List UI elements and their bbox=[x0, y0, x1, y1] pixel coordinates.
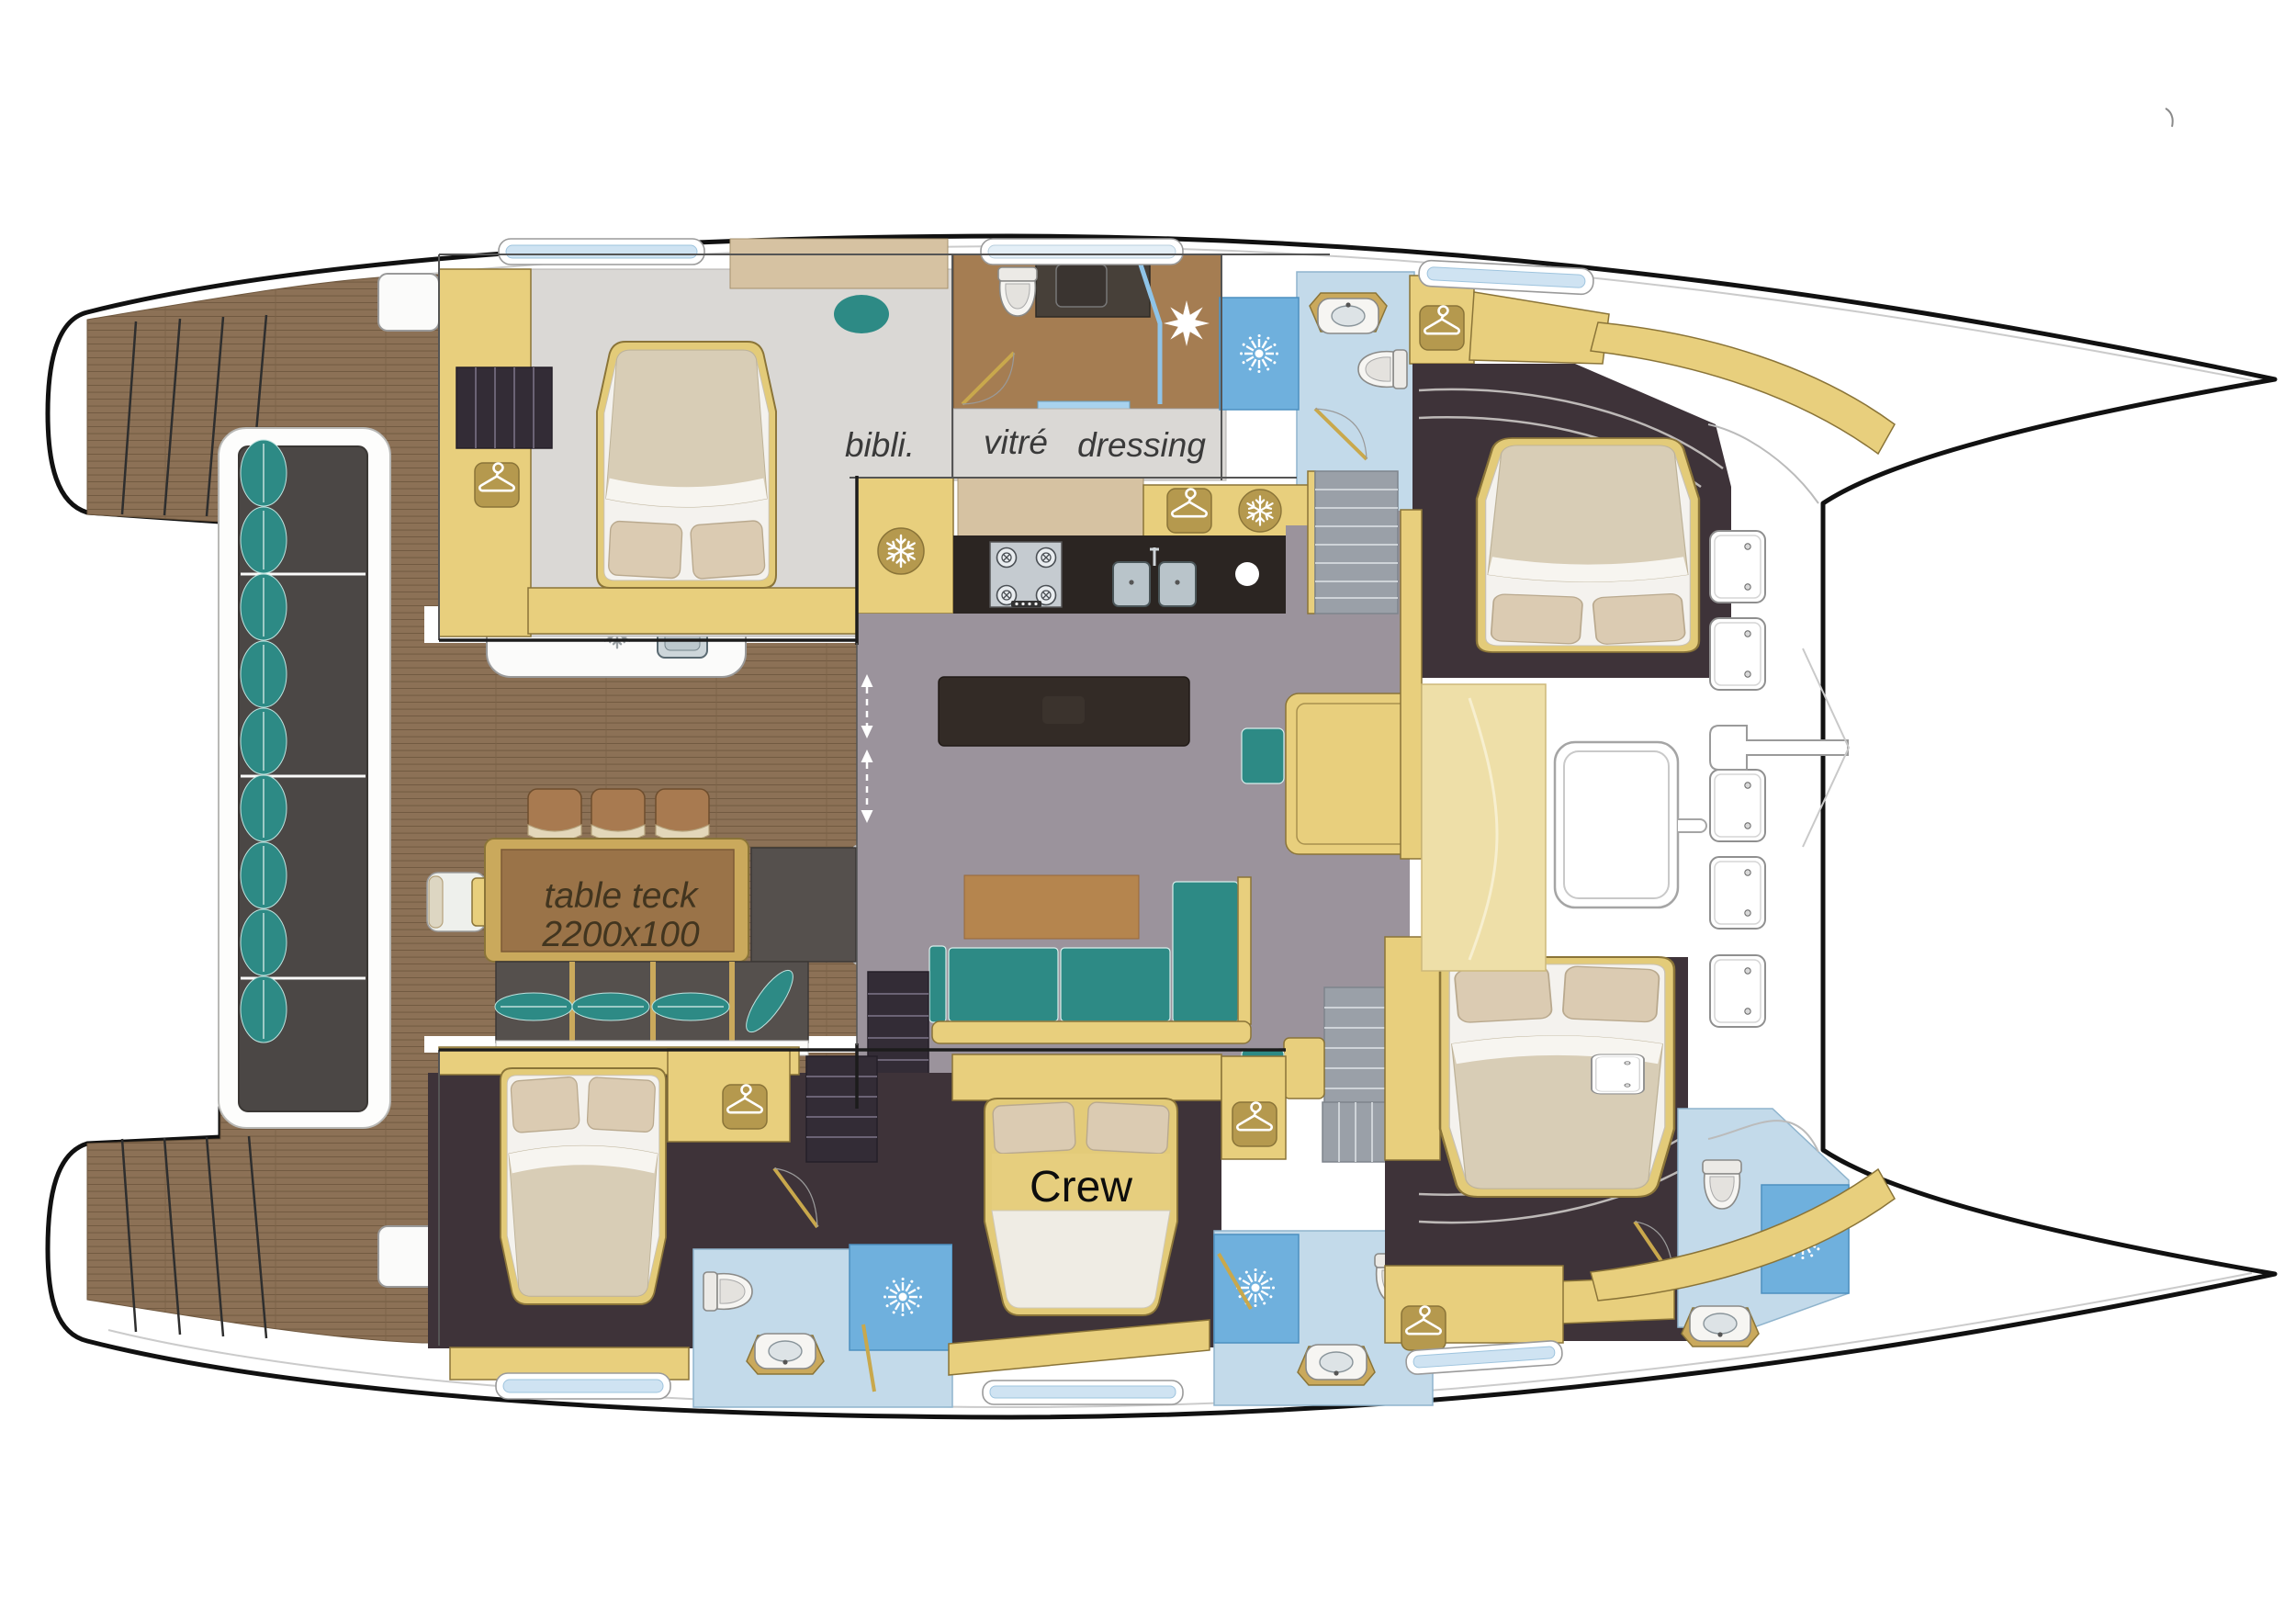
cabin-top-left-wardrobe bbox=[439, 269, 531, 637]
cabin-top-right bbox=[1412, 364, 1731, 678]
deck-hatch-icon bbox=[1710, 770, 1765, 841]
tv-cabinet-logo bbox=[1042, 696, 1085, 724]
snowflake-icon bbox=[878, 528, 924, 574]
label-library: bibli. bbox=[845, 426, 915, 464]
sink-icon bbox=[747, 1334, 824, 1374]
stairs-starboard-forward bbox=[1308, 471, 1398, 614]
coffee-table bbox=[964, 875, 1139, 939]
library-pouf bbox=[834, 295, 889, 333]
bed-bottom-left bbox=[501, 1068, 666, 1304]
deck-hatch-icon bbox=[1710, 531, 1765, 603]
cabin-top-left-cabinet bbox=[730, 239, 948, 288]
bed-top-right bbox=[1477, 438, 1699, 652]
window-crew bbox=[983, 1381, 1183, 1404]
desk-chair bbox=[1242, 728, 1284, 783]
hatch-above-wc bbox=[981, 239, 1183, 265]
lounge-cushions bbox=[241, 440, 287, 1043]
sink-icon bbox=[1298, 1345, 1375, 1385]
galley-porthole bbox=[1235, 562, 1259, 586]
dining-chair bbox=[591, 789, 645, 842]
cockpit-table: table teck 2200x100 bbox=[472, 839, 748, 962]
window-top-left bbox=[499, 239, 704, 265]
deck-locker-top bbox=[378, 274, 439, 331]
hanger-icon bbox=[475, 463, 519, 507]
deck-hatch-icon bbox=[1710, 955, 1765, 1027]
shower-star-icon bbox=[1164, 300, 1210, 346]
galley bbox=[857, 478, 1309, 614]
hanger-icon bbox=[723, 1085, 767, 1129]
plan-labels: bibli. vitré dressing bbox=[845, 423, 1206, 464]
bed-top-left bbox=[597, 342, 776, 588]
hanger-icon bbox=[1401, 1306, 1446, 1350]
stairs-port-aft bbox=[456, 367, 552, 448]
hanger-icon bbox=[1232, 1102, 1277, 1146]
table-label-line2: 2200x100 bbox=[541, 915, 700, 954]
label-glazing: vitré bbox=[984, 423, 1048, 461]
crew-bed: Crew bbox=[985, 1099, 1177, 1315]
deck-hatch-icon bbox=[1710, 618, 1765, 690]
table-label-line1: table teck bbox=[545, 876, 700, 916]
hanger-icon bbox=[1420, 306, 1464, 350]
deck-hatch-icon bbox=[1710, 857, 1765, 929]
crew-label: Crew bbox=[1030, 1163, 1132, 1212]
window-bottom-left bbox=[496, 1373, 670, 1399]
snowflake-icon bbox=[1239, 490, 1281, 532]
stairs-bottom-left bbox=[806, 1056, 877, 1162]
dining-chair bbox=[656, 789, 709, 842]
dressing-wc-room bbox=[953, 239, 1221, 412]
label-dressing: dressing bbox=[1077, 426, 1206, 464]
sink-icon bbox=[1310, 293, 1387, 333]
deck-plan-stage: table teck 2200x100 bbox=[0, 0, 2296, 1623]
stray-mark bbox=[2166, 108, 2173, 127]
sink-icon bbox=[1682, 1306, 1759, 1347]
stairs-starboard-companionway bbox=[1322, 987, 1387, 1162]
deck-hatch-icon bbox=[1592, 1054, 1644, 1094]
hanger-icon bbox=[1167, 489, 1211, 533]
aft-sun-lounge bbox=[219, 428, 390, 1128]
stove-burner-icon bbox=[990, 542, 1062, 607]
dining-chair bbox=[528, 789, 581, 842]
wardrobe-bottom-center bbox=[1385, 1266, 1563, 1375]
deck-plan-svg: table teck 2200x100 bbox=[0, 0, 2296, 1623]
